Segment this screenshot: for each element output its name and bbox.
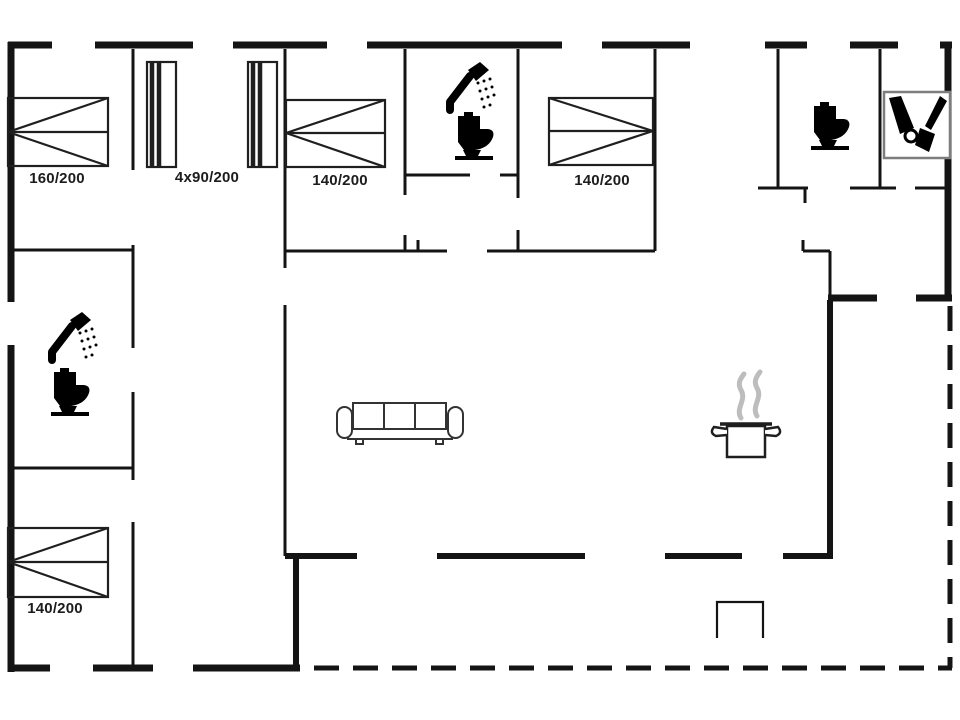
shower-icon (52, 312, 98, 360)
cleaning-equipment-icon (884, 92, 950, 158)
bed-140x200-bottom (8, 528, 108, 597)
bed-size-label: 140/200 (312, 172, 368, 189)
wc-right (811, 102, 849, 150)
sofa-icon (337, 403, 463, 444)
bed-size-label: 140/200 (574, 172, 630, 189)
bathroom-left (51, 312, 98, 416)
bed-140x200-right (549, 98, 653, 165)
floor-plan-drawing (0, 0, 960, 720)
toilet-icon (51, 368, 89, 416)
toilet-icon (811, 102, 849, 150)
bed-size-label: 160/200 (29, 170, 85, 187)
steam (755, 372, 760, 416)
bed-size-label: 4x90/200 (175, 169, 239, 186)
bunk-bed-right (248, 62, 277, 167)
bed-size-label: 140/200 (27, 600, 83, 617)
cooking-pot-icon (712, 372, 780, 457)
living-room-walls (285, 300, 833, 671)
floor-plan: 160/200 4x90/200 140/200 140/200 140/200 (0, 0, 960, 720)
toilet-icon (455, 112, 493, 160)
steam (739, 374, 744, 418)
bathroom-top (450, 62, 496, 160)
shower-icon (450, 62, 496, 110)
bed-160x200 (8, 98, 108, 166)
terrace-boundary (314, 306, 952, 668)
bed-140x200-middle (286, 100, 385, 167)
beds (8, 62, 653, 597)
bunk-bed-left (147, 62, 176, 167)
terrace-step (717, 602, 763, 638)
